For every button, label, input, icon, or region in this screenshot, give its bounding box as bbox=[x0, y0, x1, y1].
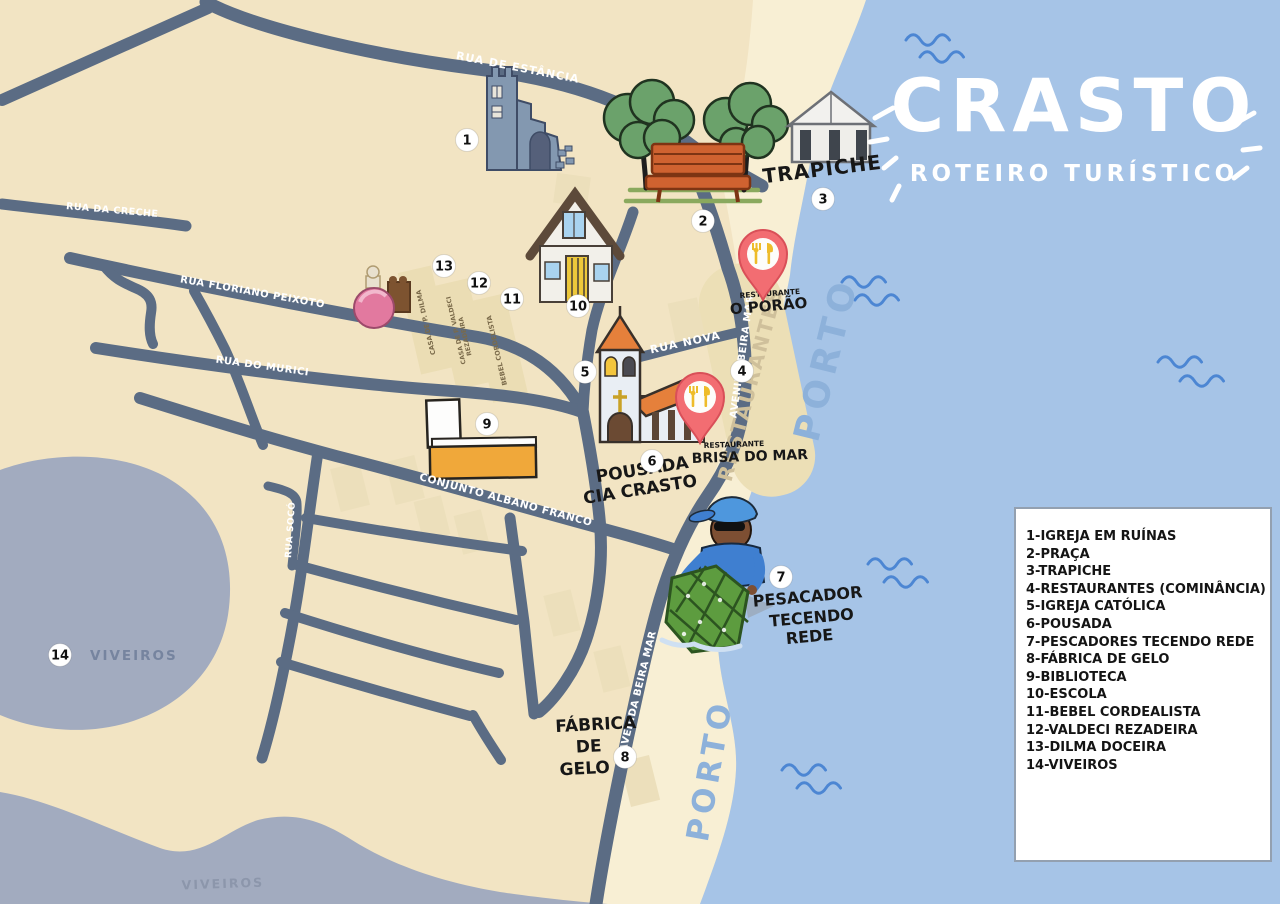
svg-text:14: 14 bbox=[51, 649, 69, 664]
legend-item-11: 11-BEBEL CORDEALISTA bbox=[1026, 704, 1264, 722]
legend-item-9: 9-BIBLIOTECA bbox=[1026, 669, 1264, 687]
fabrica-label-2: DE bbox=[575, 736, 602, 757]
map-marker-6: 6 bbox=[641, 450, 664, 473]
svg-text:12: 12 bbox=[470, 277, 488, 292]
legend-item-14: 14-VIVEIROS bbox=[1026, 757, 1264, 775]
map-marker-13: 13 bbox=[433, 255, 456, 278]
map-marker-3: 3 bbox=[812, 188, 835, 211]
map-marker-7: 7 bbox=[770, 566, 793, 589]
legend-item-2: 2-PRAÇA bbox=[1026, 546, 1264, 564]
legend-item-12: 12-VALDECI REZADEIRA bbox=[1026, 722, 1264, 740]
svg-text:5: 5 bbox=[580, 366, 589, 381]
legend-item-6: 6-POUSADA bbox=[1026, 616, 1264, 634]
svg-text:3: 3 bbox=[818, 193, 827, 208]
viveiros-label-lower: VIVEIROS bbox=[181, 875, 264, 893]
svg-text:13: 13 bbox=[435, 260, 453, 275]
legend-item-5: 5-IGREJA CATÓLICA bbox=[1026, 598, 1264, 616]
fabrica-label-3: GELO bbox=[559, 758, 610, 781]
legend-item-13: 13-DILMA DOCEIRA bbox=[1026, 739, 1264, 757]
map-marker-10: 10 bbox=[567, 295, 590, 318]
map-marker-12: 12 bbox=[468, 272, 491, 295]
legend-item-8: 8-FÁBRICA DE GELO bbox=[1026, 651, 1264, 669]
legend-box: 1-IGREJA EM RUÍNAS 2-PRAÇA 3-TRAPICHE 4-… bbox=[1014, 507, 1272, 862]
map-marker-2: 2 bbox=[692, 210, 715, 233]
legend-item-10: 10-ESCOLA bbox=[1026, 686, 1264, 704]
map-marker-14: 14 bbox=[49, 644, 72, 667]
svg-text:1: 1 bbox=[462, 134, 471, 149]
svg-text:4: 4 bbox=[737, 365, 746, 380]
legend-item-7: 7-PESCADORES TECENDO REDE bbox=[1026, 634, 1264, 652]
svg-text:11: 11 bbox=[503, 293, 521, 308]
legend-item-3: 3-TRAPICHE bbox=[1026, 563, 1264, 581]
map-marker-11: 11 bbox=[501, 288, 524, 311]
svg-text:6: 6 bbox=[647, 455, 656, 470]
viveiros-label: VIVEIROS bbox=[90, 648, 178, 664]
map-marker-8: 8 bbox=[614, 746, 637, 769]
map-marker-4: 4 bbox=[731, 360, 754, 383]
map-marker-5: 5 bbox=[574, 361, 597, 384]
map-marker-9: 9 bbox=[476, 413, 499, 436]
svg-text:7: 7 bbox=[776, 571, 785, 586]
svg-text:10: 10 bbox=[569, 300, 587, 315]
map-marker-1: 1 bbox=[456, 129, 479, 152]
legend-item-4: 4-RESTAURANTES (COMINÂNCIA) bbox=[1026, 581, 1264, 599]
svg-text:9: 9 bbox=[482, 418, 491, 433]
legend-item-1: 1-IGREJA EM RUÍNAS bbox=[1026, 528, 1264, 546]
crasto-tourist-map: PORTO PORTO RESTAURANTES VIVEIROS VIVEIR… bbox=[0, 0, 1280, 904]
svg-text:8: 8 bbox=[620, 751, 629, 766]
svg-text:2: 2 bbox=[698, 215, 707, 230]
